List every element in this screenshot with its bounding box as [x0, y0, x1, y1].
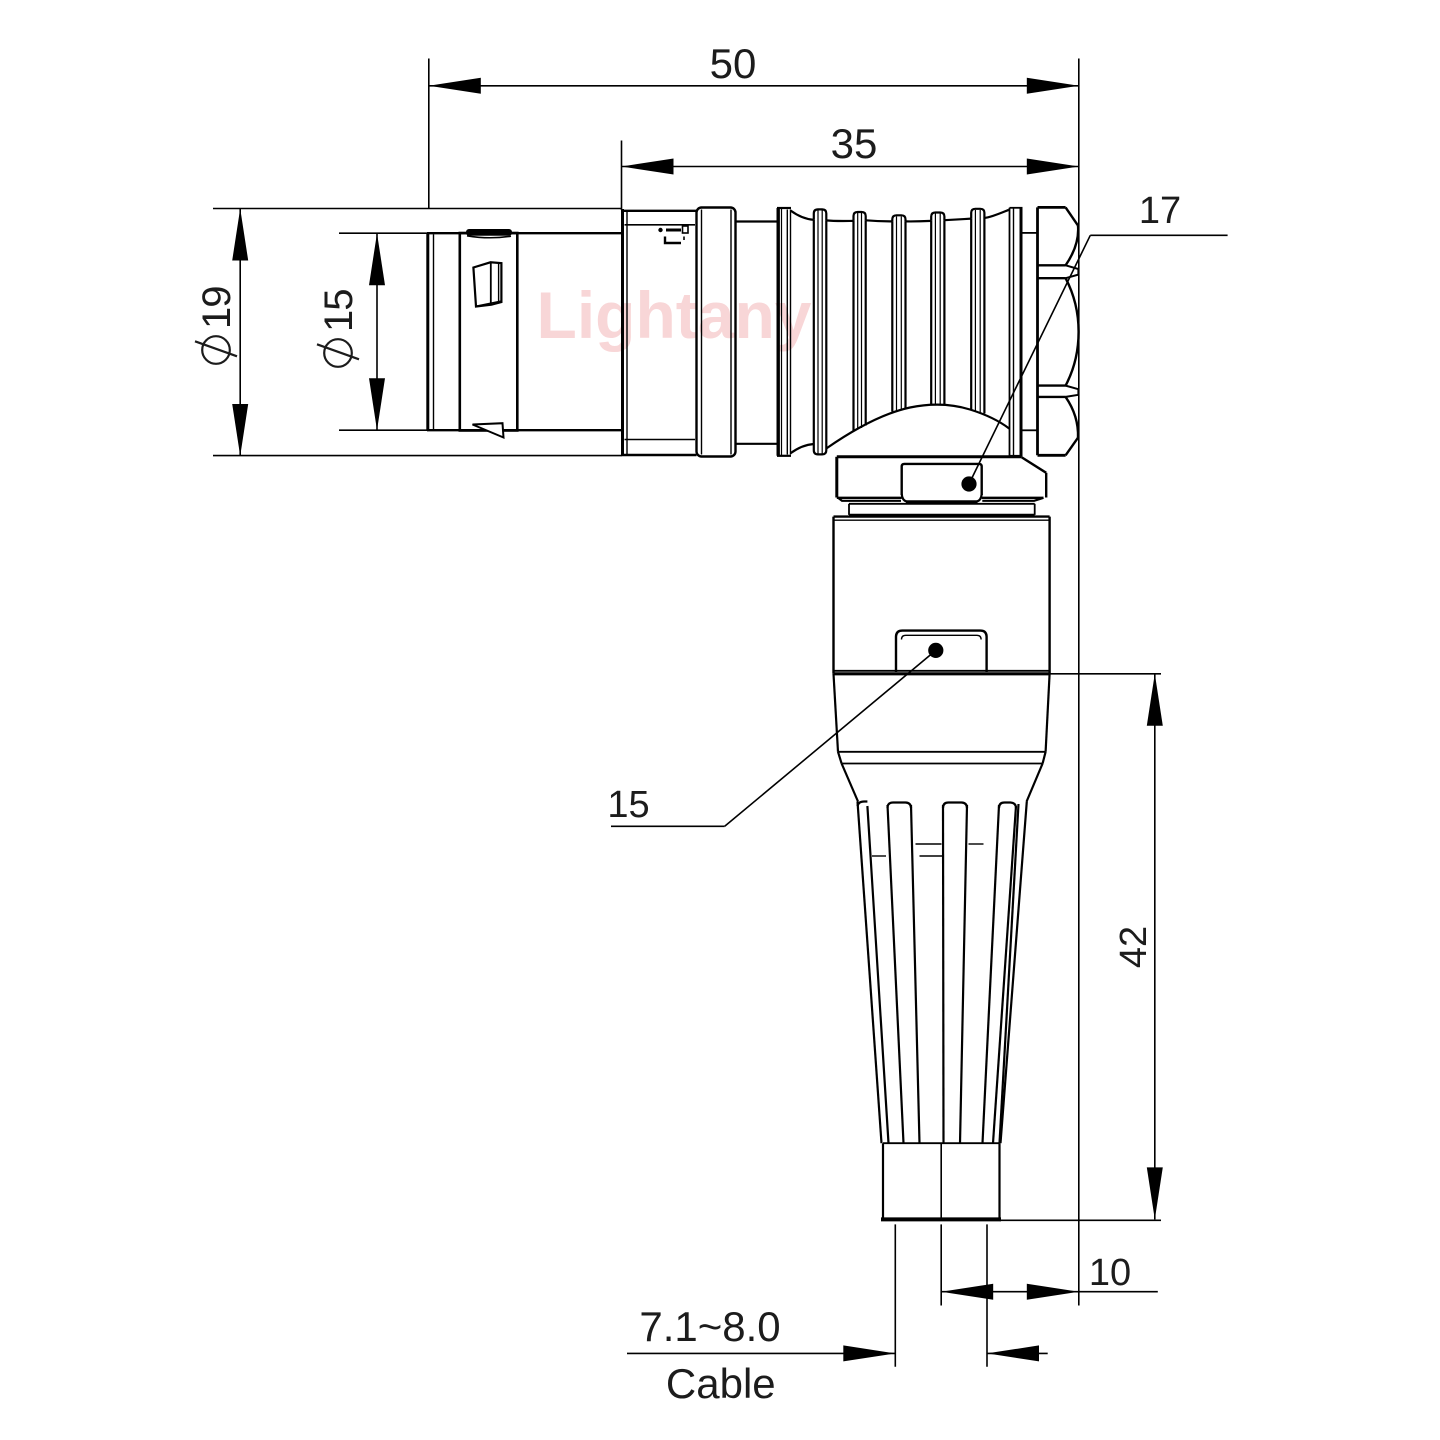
svg-text:50: 50 [710, 40, 757, 87]
svg-text:10: 10 [1089, 1252, 1131, 1294]
svg-text:15: 15 [607, 784, 649, 826]
svg-text:42: 42 [1113, 926, 1155, 968]
svg-text:17: 17 [1139, 190, 1181, 232]
svg-text:7.1~8.0: 7.1~8.0 [639, 1303, 780, 1350]
svg-text:19: 19 [195, 287, 239, 330]
svg-text:Lightany: Lightany [537, 278, 812, 352]
svg-text:15: 15 [317, 290, 361, 333]
svg-text:35: 35 [831, 120, 878, 167]
svg-text:Cable: Cable [666, 1360, 776, 1407]
